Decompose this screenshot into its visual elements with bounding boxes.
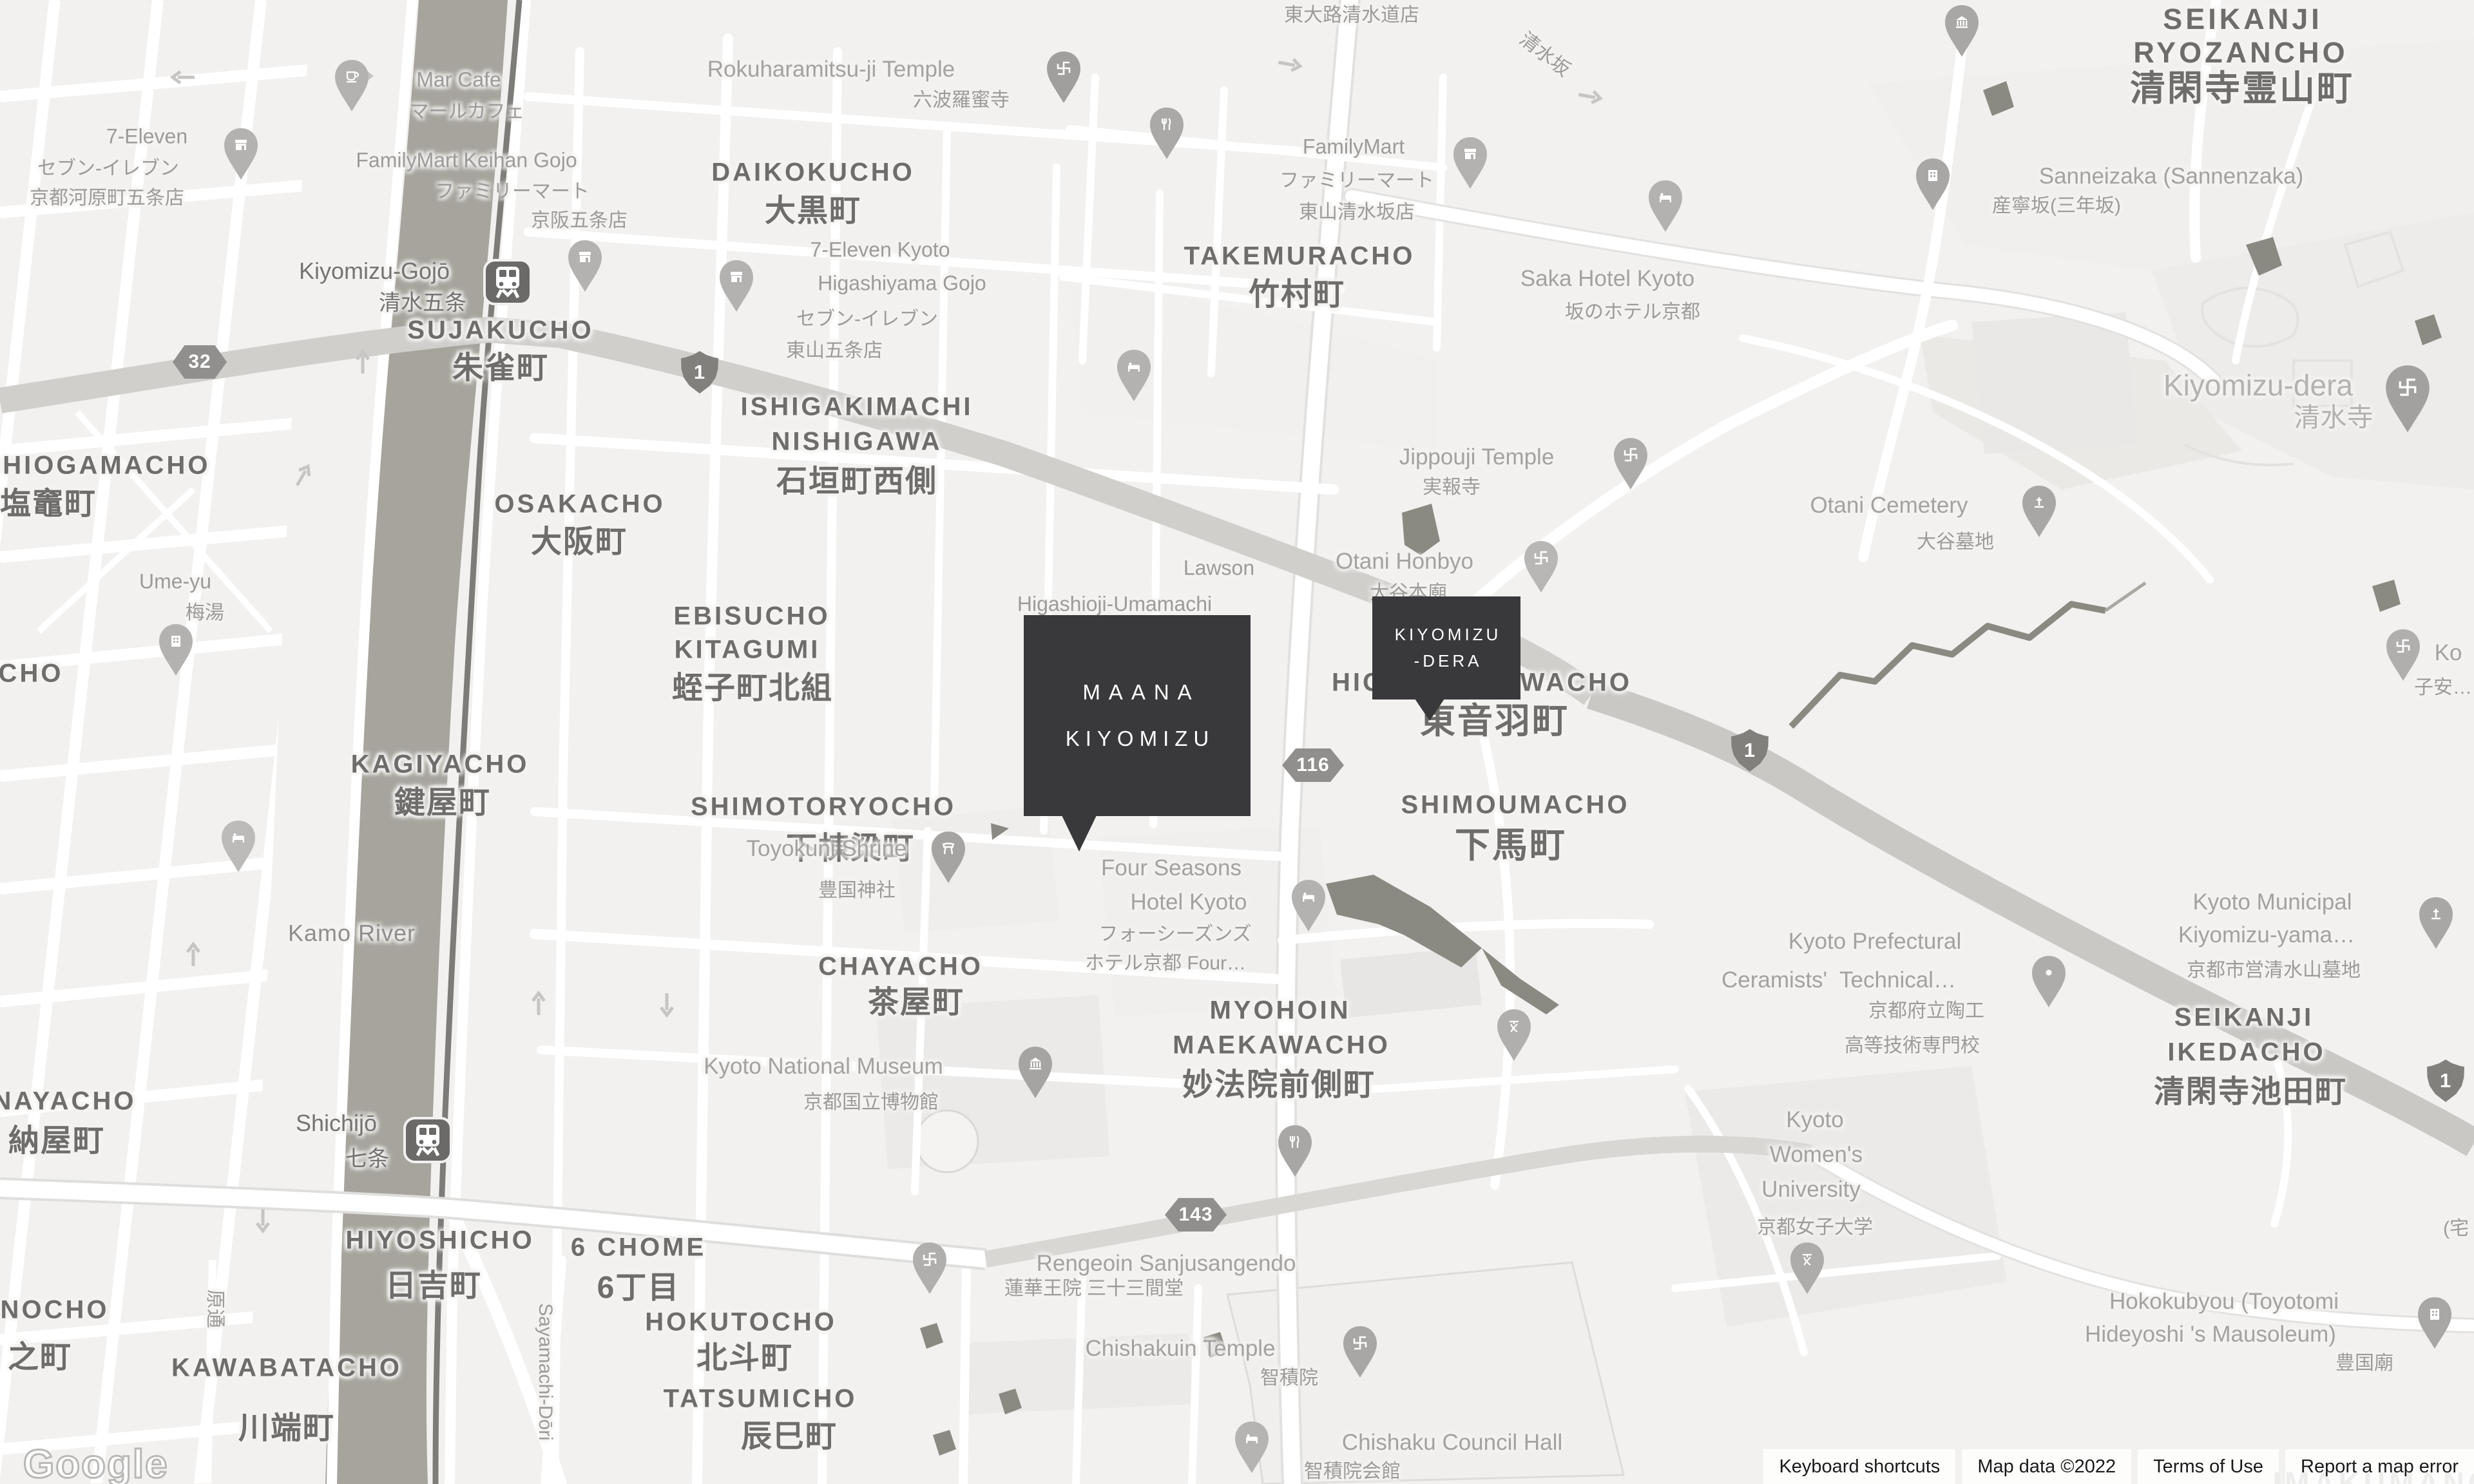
fork-pin[interactable]: [1277, 1124, 1313, 1178]
oneway-arrow-icon: [185, 942, 202, 967]
map-label: 京都市営清水山墓地: [2187, 954, 2361, 982]
fork-pin[interactable]: [1149, 106, 1185, 160]
map-label: Jippouji Temple: [1399, 444, 1555, 470]
map-label: 東大路清水道店: [1284, 0, 1419, 27]
map-label: 納屋町: [8, 1115, 105, 1160]
google-logo-watermark[interactable]: Google: [23, 1441, 169, 1484]
bed-pin[interactable]: [1234, 1420, 1270, 1474]
map-label: KITAGUMI: [675, 636, 821, 665]
attribution-bar: Keyboard shortcuts Map data ©2022 Terms …: [1763, 1449, 2474, 1484]
map-label: Mar Cafe: [416, 68, 501, 92]
map-label: 朱雀町: [452, 342, 549, 387]
map-label: HIYOSHICHO: [345, 1226, 534, 1255]
map-label: 大谷墓地: [1917, 526, 1994, 554]
map-label: University: [1761, 1177, 1861, 1203]
cup-pin[interactable]: [334, 59, 370, 113]
map-label: 茶屋町: [868, 976, 964, 1022]
map-label: 川端町: [238, 1402, 335, 1447]
map-label: 七条: [345, 1141, 389, 1173]
school-pin[interactable]: [1789, 1241, 1825, 1295]
map-label: 北斗町: [696, 1332, 793, 1377]
train-station-icon[interactable]: [403, 1117, 452, 1163]
map-label: MYOHOIN: [1209, 996, 1350, 1025]
oneway-arrow-icon: [530, 991, 547, 1016]
map-label: 原通: [203, 1289, 231, 1328]
torii-pin[interactable]: [930, 830, 966, 884]
map-label: 塩竈町: [0, 478, 97, 523]
map-label: 京都国立博物館: [803, 1086, 939, 1114]
map-label: 之町: [8, 1331, 72, 1376]
map-label: 蓮華王院 三十三間堂: [1004, 1272, 1184, 1300]
custom-marker-kiyomizudera[interactable]: KIYOMIZU -DERA: [1372, 596, 1520, 699]
map-label: 智積院: [1260, 1362, 1318, 1390]
map-label: EBISUCHO: [673, 602, 830, 631]
map-label: Hotel Kyoto: [1131, 889, 1247, 915]
map-label: Ko: [2435, 640, 2462, 666]
bed-pin[interactable]: [1647, 179, 1683, 233]
terms-of-use-link[interactable]: Terms of Use: [2138, 1449, 2279, 1484]
map-label: SEIKANJI: [2174, 1004, 2314, 1032]
map-label: 産寧坂(三年坂): [1992, 189, 2121, 218]
report-map-error-link[interactable]: Report a map error: [2285, 1449, 2474, 1484]
map-label: CHO: [0, 660, 63, 689]
map-label: Higashioji-Umamachi: [1017, 593, 1212, 616]
manji-pin[interactable]: [1523, 540, 1559, 594]
map-label: TATSUMICHO: [664, 1385, 858, 1414]
map-label: Toyokuni Shrine: [746, 836, 906, 862]
building-pin[interactable]: [158, 623, 194, 677]
map-label: 辰巳町: [741, 1411, 838, 1456]
map-label: セブン-イレブン: [37, 152, 179, 180]
map-label: 6 CHOME: [571, 1233, 706, 1262]
route-143-road: [986, 1144, 1810, 1259]
map-label: Ceramists' Technical…: [1721, 967, 1956, 993]
map-label: SHIOGAMACHO: [0, 452, 210, 480]
map-label: Otani Honbyo: [1336, 549, 1473, 575]
map-label: 智積院会館: [1304, 1455, 1401, 1483]
map-label: KAWABATACHO: [171, 1354, 402, 1383]
map-label: DAIKOKUCHO: [711, 158, 915, 187]
map-label: ISHIGAKIMACHI: [741, 393, 973, 422]
map-label: 東山五条店: [786, 334, 883, 363]
map-label: Otani Cemetery: [1810, 493, 1968, 518]
map-label: Kyoto: [1786, 1107, 1844, 1133]
map-label: SHIMOUMACHO: [1401, 791, 1629, 820]
map-label: 6丁目: [597, 1262, 680, 1307]
map-label: 清閑寺池田町: [2154, 1066, 2347, 1111]
tomb-pin[interactable]: [2418, 896, 2454, 950]
map-label: Hokokubyou (Toyotomi: [2109, 1289, 2339, 1315]
map-label: マールカフェ: [409, 95, 524, 124]
map-label: Four Seasons: [1101, 855, 1242, 881]
map-label: OSAKACHO: [494, 490, 665, 519]
map-label: ホテル京都 Four…: [1085, 947, 1246, 975]
map-label: Kyoto Prefectural: [1788, 929, 1961, 955]
map-label: Kiyomizu-Gojō: [299, 258, 450, 285]
map-label: Kyoto Municipal: [2192, 889, 2352, 915]
map-label: 清水寺: [2294, 395, 2373, 434]
museum-pin[interactable]: [1944, 4, 1980, 58]
map-label: Shichijō: [296, 1110, 377, 1137]
manji-pin[interactable]: [2385, 628, 2421, 682]
map-label: 京都河原町五条店: [30, 182, 184, 210]
marker-line: MAANA: [1074, 680, 1200, 705]
map-label: 京阪五条店: [531, 204, 628, 233]
map-label: 高等技術専門校: [1845, 1029, 1980, 1058]
map-label: ファミリーマート: [1280, 164, 1434, 193]
map-label: 妙法院前側町: [1182, 1059, 1376, 1104]
map-label: 梅湯: [186, 596, 224, 625]
museum-pin[interactable]: [1017, 1045, 1053, 1099]
map-label: 清水五条: [379, 285, 466, 317]
bed-pin[interactable]: [220, 819, 256, 873]
store-pin[interactable]: [567, 239, 603, 293]
oneway-arrow-icon: [658, 992, 675, 1018]
map-label: Chishakuin Temple: [1085, 1336, 1275, 1362]
oneway-arrow-icon: [254, 1208, 271, 1233]
store-pin[interactable]: [1452, 136, 1488, 190]
map-label: 清閑寺霊山町: [2130, 59, 2354, 111]
custom-marker-maana[interactable]: MAANA KIYOMIZU: [1024, 615, 1251, 816]
building-pin[interactable]: [1915, 157, 1951, 211]
map-label: TAKEMURACHO: [1184, 242, 1415, 271]
map-label: Kyoto National Museum: [704, 1054, 943, 1080]
map-label: Ume-yu: [139, 570, 211, 594]
marker-line: KIYOMIZU: [1060, 727, 1215, 751]
keyboard-shortcuts-button[interactable]: Keyboard shortcuts: [1763, 1449, 1955, 1484]
map-label: Kamo River: [288, 920, 416, 947]
map-label: Kiyomizu-yama…: [2178, 922, 2355, 948]
map-label: Chishaku Council Hall: [1342, 1430, 1562, 1456]
map-label: Higashiyama Gojo: [818, 272, 986, 296]
map-canvas[interactable]: SUJAKUCHO朱雀町DAIKOKUCHO大黒町TAKEMURACHO竹村町I…: [0, 0, 2474, 1484]
map-label: 豊国神社: [818, 874, 896, 902]
map-label: 子安…: [2414, 671, 2472, 699]
manji-pin[interactable]: [1342, 1325, 1378, 1379]
map-label: 坂のホテル京都: [1565, 296, 1700, 324]
store-pin[interactable]: [718, 259, 754, 313]
map-label: NISHIGAWA: [772, 428, 943, 457]
map-label: Hideyoshi 's Mausoleum): [2085, 1322, 2336, 1347]
mountain-stream: [1791, 604, 2105, 727]
map-label: 京都女子大学: [1757, 1211, 1873, 1239]
bed-pin[interactable]: [1116, 348, 1152, 403]
map-label: SEIKANJI: [2163, 3, 2323, 36]
map-label: NAYACHO: [0, 1087, 136, 1116]
manji-pin[interactable]: [2384, 364, 2431, 434]
map-label: 鍵屋町: [394, 777, 491, 822]
map-label: 東山清水坂店: [1299, 196, 1415, 224]
map-label: Sayamachi-Dōri: [534, 1303, 556, 1440]
map-label: Women's: [1770, 1142, 1863, 1168]
map-label: Rokuharamitsu-ji Temple: [707, 57, 955, 82]
map-label: 大黒町: [765, 185, 861, 230]
marker-pointer: [1415, 699, 1444, 721]
map-label: フォーシーズンズ: [1098, 918, 1251, 946]
oneway-arrow-icon: [170, 69, 196, 86]
map-label: 六波羅蜜寺: [913, 84, 1010, 112]
map-label: Lawson: [1184, 556, 1254, 580]
marker-pointer: [1062, 815, 1097, 851]
map-data-copyright: Map data ©2022: [1962, 1449, 2131, 1484]
map-label: IKEDACHO: [2167, 1038, 2325, 1067]
map-label: 石垣町西側: [776, 455, 937, 500]
map-label: SUJAKUCHO: [407, 316, 593, 345]
map-label: 下馬町: [1455, 816, 1567, 868]
manji-pin[interactable]: [1046, 50, 1082, 104]
marker-line: KIYOMIZU: [1392, 625, 1502, 645]
map-label: 大阪町: [531, 516, 628, 561]
map-label: NOCHO: [1, 1296, 110, 1325]
map-label: FamilyMart Keihan Gojo: [356, 149, 577, 173]
school-pin[interactable]: [1496, 1008, 1532, 1062]
manji-pin[interactable]: [912, 1241, 948, 1295]
map-label: 京都府立陶工: [1868, 994, 1984, 1023]
map-label: SHIMOTORYOCHO: [691, 793, 956, 822]
museum-pond: [916, 1110, 978, 1172]
train-station-icon[interactable]: [483, 259, 532, 305]
bed-pin[interactable]: [1290, 879, 1327, 933]
map-label: Sanneizaka (Sannenzaka): [2039, 164, 2304, 189]
map-label: セブン-イレブン: [796, 303, 938, 331]
marker-line: -DERA: [1411, 651, 1482, 671]
map-label: KAGIYACHO: [351, 750, 530, 779]
map-label: 実報寺: [1423, 471, 1481, 499]
map-label: MAEKAWACHO: [1173, 1031, 1390, 1060]
map-label: 7-Eleven Kyoto: [810, 238, 950, 262]
dot-pin[interactable]: [2031, 955, 2067, 1009]
map-label: FamilyMart: [1303, 135, 1405, 159]
map-label: 7-Eleven: [106, 125, 187, 149]
toyokuni-block: [892, 806, 1060, 933]
map-label: 竹村町: [1249, 269, 1345, 314]
building-pin[interactable]: [2417, 1296, 2453, 1350]
map-label: ファミリーマート: [435, 175, 590, 204]
map-label: Saka Hotel Kyoto: [1520, 266, 1694, 292]
tomb-pin[interactable]: [2021, 484, 2057, 538]
store-pin[interactable]: [223, 127, 259, 181]
manji-pin[interactable]: [1613, 437, 1649, 491]
oneway-arrow-icon: [354, 349, 371, 375]
map-label: 豊国廟: [2335, 1347, 2393, 1375]
map-label: (宅: [2443, 1212, 2469, 1241]
map-label: 日吉町: [385, 1260, 482, 1305]
map-label: 蛭子町北組: [672, 662, 833, 707]
